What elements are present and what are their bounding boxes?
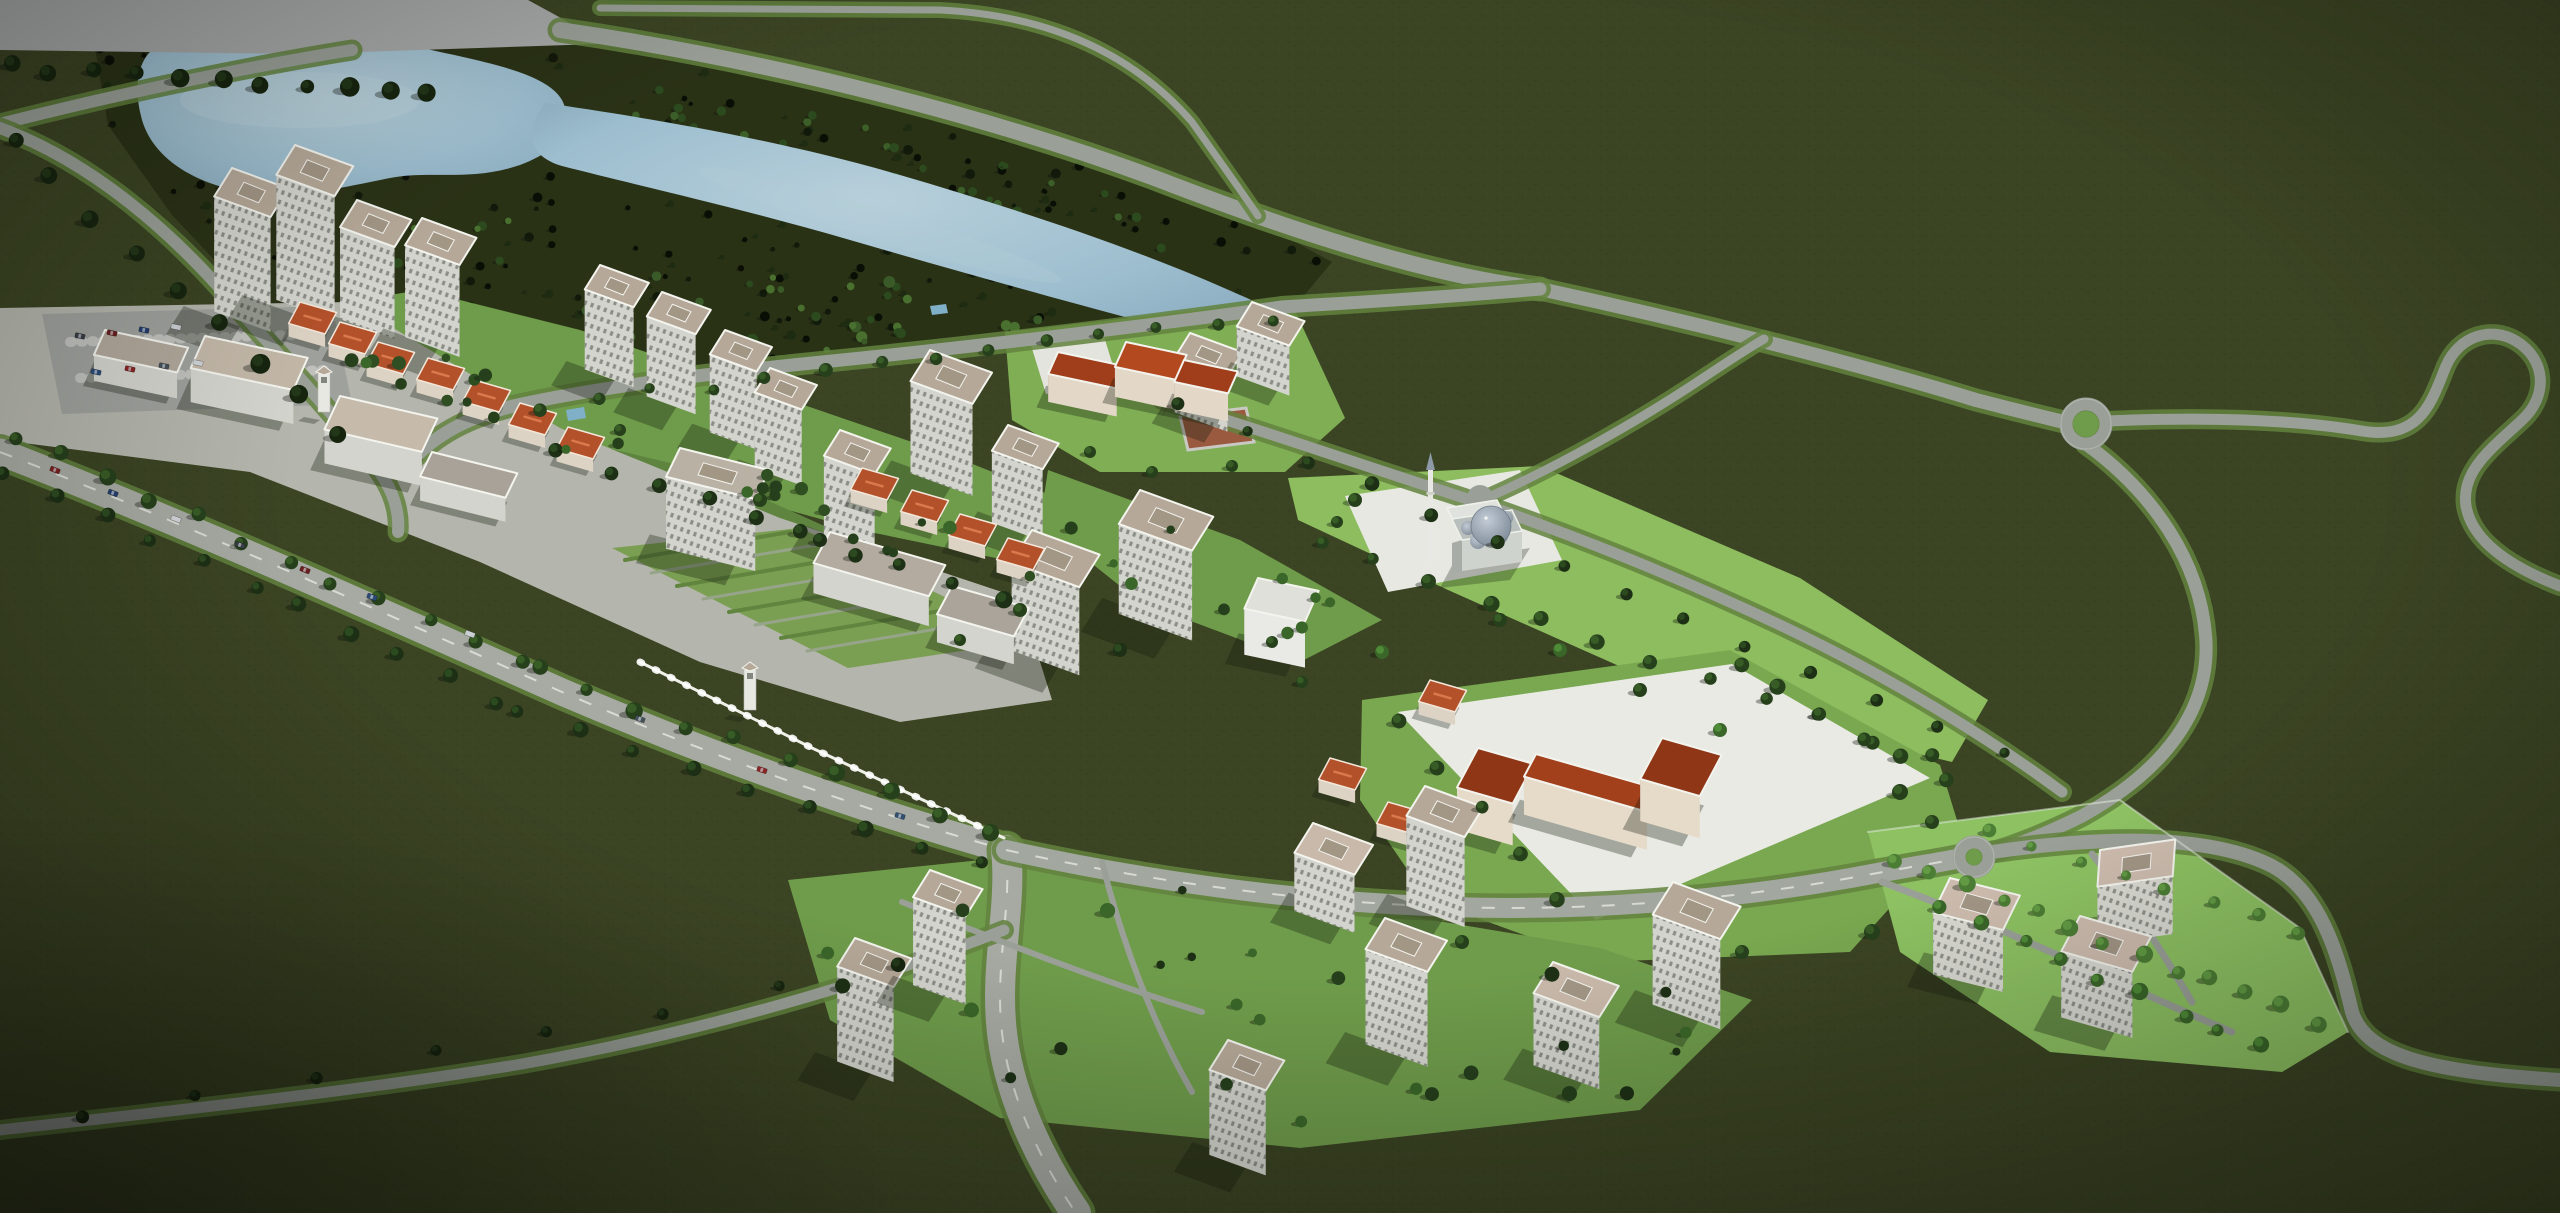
layer-overlays xyxy=(0,0,2560,1213)
masterplan-aerial-render xyxy=(0,0,2560,1213)
render-root xyxy=(0,0,2560,1213)
corner-shade xyxy=(0,0,2560,1213)
site-plan-svg xyxy=(0,0,2560,1213)
